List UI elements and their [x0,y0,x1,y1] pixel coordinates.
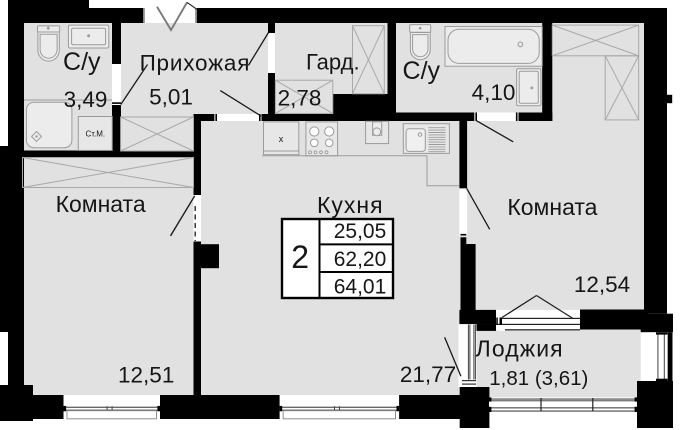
svg-text:12,51: 12,51 [118,363,174,388]
svg-text:С/у: С/у [403,57,441,85]
svg-text:Ст.М.: Ст.М. [85,130,105,139]
svg-text:5,01: 5,01 [149,85,193,110]
svg-text:25,05: 25,05 [334,220,387,243]
svg-text:Кухня: Кухня [317,192,384,218]
svg-text:1,81 (3,61): 1,81 (3,61) [489,367,588,390]
svg-text:12,54: 12,54 [574,272,630,297]
svg-text:Комната: Комната [507,194,597,220]
svg-text:64,01: 64,01 [334,276,387,299]
svg-text:x: x [279,134,284,144]
svg-text:Гард.: Гард. [306,50,360,75]
svg-text:2,78: 2,78 [278,86,322,111]
svg-text:С/у: С/у [63,48,101,76]
svg-text:4,10: 4,10 [472,80,516,105]
svg-text:Комната: Комната [56,191,146,217]
svg-text:62,20: 62,20 [334,248,387,271]
svg-text:21,77: 21,77 [400,362,456,387]
svg-text:Прихожая: Прихожая [140,51,251,76]
svg-text:Лоджия: Лоджия [476,336,564,362]
svg-text:2: 2 [291,239,309,275]
svg-text:3,49: 3,49 [64,87,108,112]
